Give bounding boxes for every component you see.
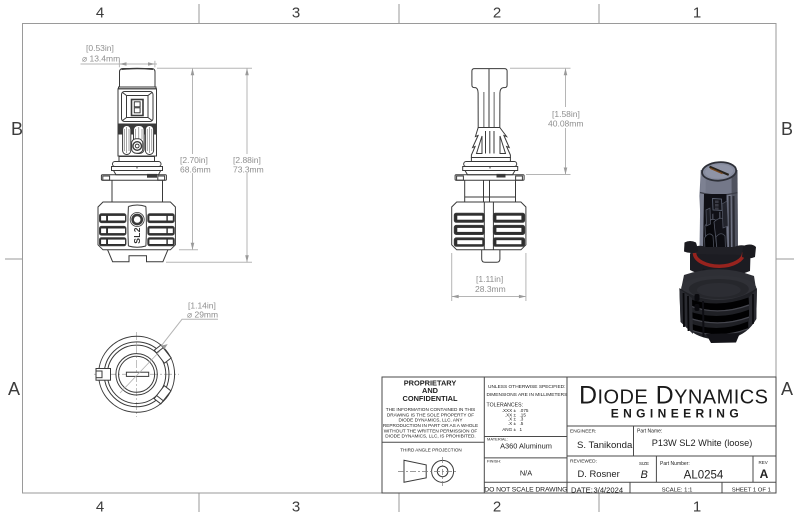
svg-text:DIODE DYNAMICS: DIODE DYNAMICS: [579, 382, 768, 410]
svg-text:CONFIDENTIAL: CONFIDENTIAL: [402, 394, 458, 403]
svg-text:68.6mm: 68.6mm: [180, 165, 211, 175]
svg-text:B: B: [781, 119, 793, 139]
svg-text:[0.53in]: [0.53in]: [86, 43, 114, 53]
svg-text:D. Rosner: D. Rosner: [578, 468, 620, 479]
svg-text:4: 4: [96, 498, 104, 515]
svg-text:ANG ±: ANG ±: [502, 427, 516, 432]
svg-text:SIZE: SIZE: [639, 461, 649, 466]
svg-text:A360 Aluminum: A360 Aluminum: [500, 441, 552, 450]
svg-text:3: 3: [292, 5, 300, 22]
svg-text:THE INFORMATION CONTAINED IN T: THE INFORMATION CONTAINED IN THIS: [386, 407, 476, 412]
svg-text:DIMENSIONS ARE IN MILLIMETERS: DIMENSIONS ARE IN MILLIMETERS: [487, 392, 568, 398]
svg-text:UNLESS OTHERWISE SPECIFIED:: UNLESS OTHERWISE SPECIFIED:: [488, 384, 565, 390]
svg-text:FINISH:: FINISH:: [487, 459, 501, 464]
svg-text:A: A: [8, 379, 20, 399]
svg-text:.X ±: .X ±: [508, 421, 517, 426]
svg-text:ENGINEERING: ENGINEERING: [611, 407, 743, 421]
svg-text:[2.88in]: [2.88in]: [233, 155, 261, 165]
svg-text:[1.58in]: [1.58in]: [552, 109, 580, 119]
svg-text:P13W SL2 White (loose): P13W SL2 White (loose): [652, 438, 753, 448]
svg-text:[2.70in]: [2.70in]: [180, 155, 208, 165]
svg-text:N/A: N/A: [520, 468, 532, 477]
svg-text:B: B: [11, 119, 23, 139]
svg-text:1: 1: [520, 427, 523, 432]
svg-text:SCALE: 1:1: SCALE: 1:1: [662, 487, 693, 493]
svg-text:2: 2: [493, 498, 501, 515]
svg-text:⌀ 13.4mm: ⌀ 13.4mm: [82, 54, 120, 64]
svg-text:3: 3: [292, 498, 300, 515]
svg-text:⌀ 29mm: ⌀ 29mm: [187, 310, 218, 320]
svg-text:4: 4: [96, 5, 104, 22]
svg-text:3/4/2024: 3/4/2024: [594, 485, 624, 494]
svg-text:DATE:: DATE:: [571, 485, 593, 494]
svg-text:[1.11in]: [1.11in]: [476, 274, 503, 284]
svg-text:SL2: SL2: [132, 227, 142, 244]
svg-text:1: 1: [693, 498, 701, 515]
svg-text:B: B: [641, 469, 648, 481]
svg-text:A: A: [781, 379, 793, 399]
svg-text:73.3mm: 73.3mm: [233, 165, 264, 175]
svg-text:A: A: [760, 467, 769, 481]
svg-text:SHEET 1 OF 1: SHEET 1 OF 1: [732, 487, 771, 493]
svg-text:Part Name:: Part Name:: [637, 428, 662, 434]
svg-text:1: 1: [693, 5, 701, 22]
svg-text:DIODE DYNAMICS, LLC, IS PROHIB: DIODE DYNAMICS, LLC, IS PROHIBITED.: [385, 434, 475, 439]
svg-text:.5: .5: [520, 421, 524, 426]
svg-text:40.08mm: 40.08mm: [548, 119, 583, 129]
svg-text:THIRD ANGLE PROJECTION: THIRD ANGLE PROJECTION: [400, 448, 462, 453]
svg-text:DO NOT SCALE DRAWING: DO NOT SCALE DRAWING: [484, 486, 567, 493]
svg-text:Part Number:: Part Number:: [660, 461, 690, 467]
svg-text:ENGINEER:: ENGINEER:: [570, 428, 596, 434]
svg-text:DRAWING IS THE SOLE PROPERTY O: DRAWING IS THE SOLE PROPERTY OF: [387, 412, 474, 417]
svg-text:REVIEWED:: REVIEWED:: [570, 458, 597, 464]
svg-text:28.3mm: 28.3mm: [475, 284, 506, 294]
svg-text:2: 2: [493, 5, 501, 22]
svg-text:REV: REV: [759, 460, 768, 465]
svg-text:REPRODUCTION IN PART OR AS A W: REPRODUCTION IN PART OR AS A WHOLE: [383, 423, 478, 428]
svg-text:DIODE DYNAMICS, LLC. ANY: DIODE DYNAMICS, LLC. ANY: [398, 418, 463, 423]
svg-text:AL0254: AL0254: [684, 470, 724, 482]
svg-text:S. Tanikonda: S. Tanikonda: [577, 440, 633, 451]
svg-text:WITHOUT THE WRITTEN PERMISSION: WITHOUT THE WRITTEN PERMISSION OF: [384, 428, 478, 433]
